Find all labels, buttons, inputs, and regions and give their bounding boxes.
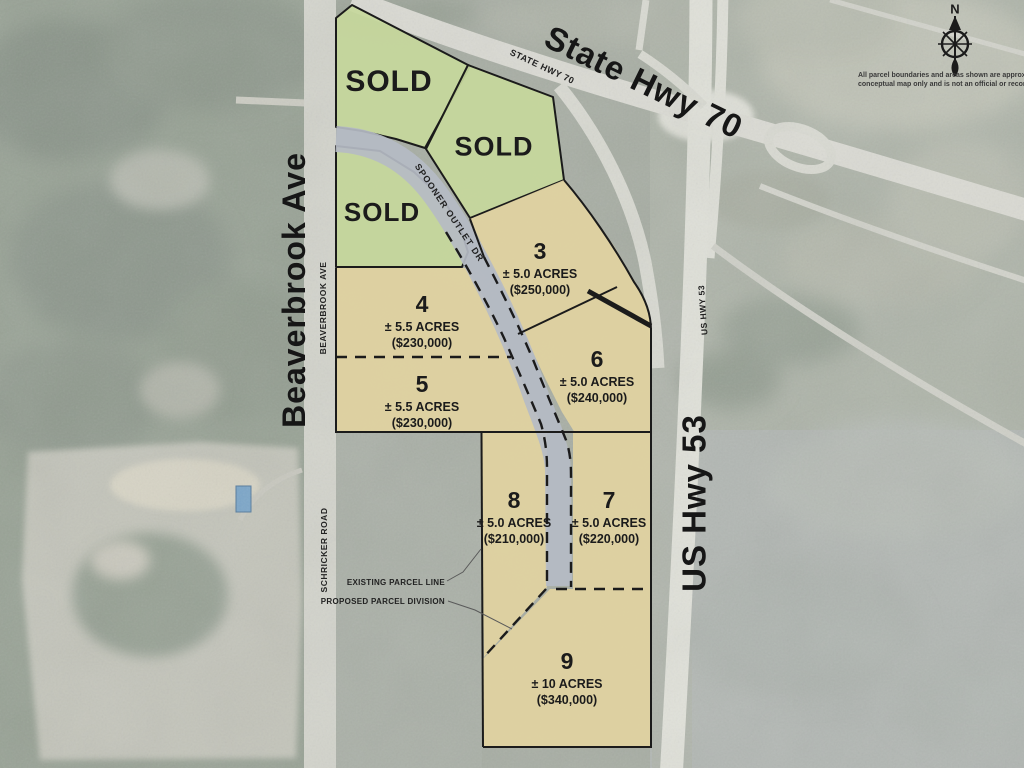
- parcel-4-label: 4 ± 5.5 ACRES ($230,000): [385, 293, 459, 349]
- legend-existing-parcel-line: EXISTING PARCEL LINE: [347, 579, 445, 587]
- parcel-7-price: ($220,000): [572, 533, 646, 546]
- legend-proposed-parcel-division: PROPOSED PARCEL DIVISION: [321, 598, 445, 606]
- parcel-9-label: 9 ± 10 ACRES ($340,000): [531, 650, 602, 706]
- parcel-8-label: 8 ± 5.0 ACRES ($210,000): [477, 489, 551, 545]
- disclaimer-line-1: All parcel boundaries and areas shown ar…: [858, 72, 1024, 81]
- sold-label-2: SOLD: [454, 134, 533, 161]
- parcel-8-price: ($210,000): [477, 533, 551, 546]
- beaverbrook-ave-label-small: BEAVERBROOK AVE: [319, 262, 328, 355]
- parcel-5-label: 5 ± 5.5 ACRES ($230,000): [385, 373, 459, 429]
- parcel-6-acres: ± 5.0 ACRES: [560, 376, 634, 389]
- parcel-3-price: ($250,000): [503, 284, 577, 297]
- compass-north-label: N: [950, 3, 959, 16]
- parcel-5-number: 5: [385, 373, 459, 396]
- parcel-5-price: ($230,000): [385, 417, 459, 430]
- parcel-4-acres: ± 5.5 ACRES: [385, 321, 459, 334]
- parcel-6-number: 6: [560, 348, 634, 371]
- parcel-3-label: 3 ± 5.0 ACRES ($250,000): [503, 240, 577, 296]
- parcel-7-label: 7 ± 5.0 ACRES ($220,000): [572, 489, 646, 545]
- parcel-8-acres: ± 5.0 ACRES: [477, 517, 551, 530]
- disclaimer-line-2: conceptual map only and is not an offici…: [858, 81, 1024, 90]
- parcel-4-price: ($230,000): [385, 337, 459, 350]
- schricker-road-label: SCHRICKER ROAD: [320, 508, 329, 593]
- sold-label-1: SOLD: [345, 67, 432, 97]
- parcel-9-acres: ± 10 ACRES: [531, 678, 602, 691]
- parcel-6-label: 6 ± 5.0 ACRES ($240,000): [560, 348, 634, 404]
- parcel-3-acres: ± 5.0 ACRES: [503, 268, 577, 281]
- parcel-9-number: 9: [531, 650, 602, 673]
- parcel-map-image: SOLD SOLD SOLD 3 ± 5.0 ACRES ($250,000) …: [0, 0, 1024, 768]
- us-hwy-53-label-large: US Hwy 53: [678, 414, 711, 592]
- parcel-8-number: 8: [477, 489, 551, 512]
- parcel-6-price: ($240,000): [560, 392, 634, 405]
- parcel-4-number: 4: [385, 293, 459, 316]
- map-disclaimer: All parcel boundaries and areas shown ar…: [858, 72, 1024, 90]
- parcel-9-price: ($340,000): [531, 694, 602, 707]
- map-canvas: [0, 0, 1024, 768]
- parcel-7-acres: ± 5.0 ACRES: [572, 517, 646, 530]
- parcel-3-number: 3: [503, 240, 577, 263]
- parcel-5-acres: ± 5.5 ACRES: [385, 401, 459, 414]
- parcel-7-number: 7: [572, 489, 646, 512]
- sold-label-3: SOLD: [344, 199, 420, 225]
- beaverbrook-ave-label-large: Beaverbrook Ave: [278, 152, 310, 428]
